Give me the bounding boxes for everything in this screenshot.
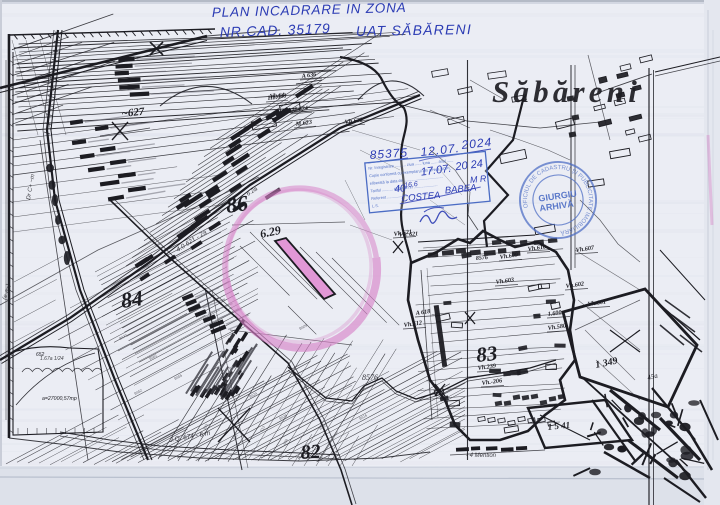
svg-text:~627: ~627 <box>121 106 145 120</box>
svg-text:a=27000,57mp: a=27000,57mp <box>42 396 77 402</box>
svg-text:UAT SĂBĂRENI: UAT SĂBĂRENI <box>356 21 472 39</box>
svg-text:Săbăreni: Săbăreni <box>492 74 641 109</box>
svg-text:8576: 8576 <box>476 255 488 262</box>
svg-text:L.S.: L.S. <box>372 203 379 209</box>
svg-text:82: 82 <box>300 441 321 464</box>
svg-text:16,6: 16,6 <box>404 181 418 189</box>
svg-text:652: 652 <box>36 352 45 358</box>
svg-text:83: 83 <box>475 341 498 367</box>
svg-text:8576: 8576 <box>362 373 378 382</box>
svg-text:84: 84 <box>119 285 144 313</box>
